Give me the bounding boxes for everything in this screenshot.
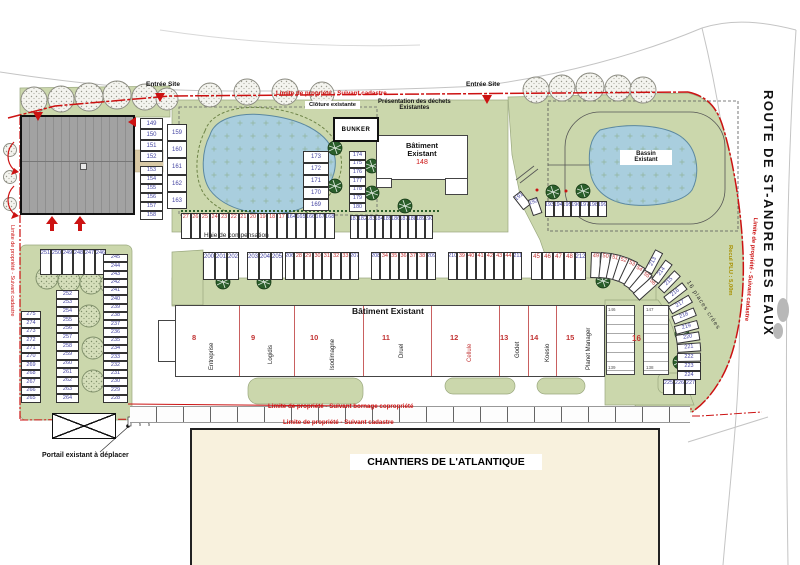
parking-stall: 156 (140, 193, 163, 202)
parking-stall: 171 (303, 175, 329, 187)
unit-number: 10 (310, 333, 318, 342)
bassin-line1: Bassin (636, 151, 656, 157)
parking-stall: 275 (21, 311, 41, 319)
parking-stall: 258 (56, 342, 79, 351)
unit-name: Entreprise (209, 343, 215, 370)
b148-number: 148 (416, 159, 428, 166)
boundary-label: Limite de propriété - Suivant bornage co… (268, 404, 413, 411)
parking-stall: 172 (303, 163, 329, 175)
parking-group: 251250249248247246 (40, 249, 106, 275)
parking-stall: 202 (227, 252, 239, 280)
hedge-label: Haie de compensation (204, 233, 269, 240)
bush-icon (82, 337, 104, 359)
parking-stall: 180 (349, 203, 366, 212)
parking-stall: 39 (457, 252, 466, 280)
parking-stall: 262 (56, 377, 79, 386)
parking-stall: 209 (427, 252, 436, 280)
unit-divider (363, 306, 364, 376)
parking-stall: 150 (140, 129, 163, 140)
parking-group: 153154155156157158 (140, 166, 163, 220)
bassin-label: Bassin Existant (620, 150, 672, 165)
unit-name: Isodimagne (330, 339, 336, 370)
parking-stall: 35 (390, 252, 399, 280)
main-building-label: Bâtiment Existant (352, 307, 424, 316)
parking-stall: 37 (408, 252, 417, 280)
parking-group: 206282930313233207 (285, 252, 359, 280)
parking-stall: 270 (21, 353, 41, 361)
parking-stall: 182 (358, 215, 366, 239)
parking-stall: 17 (277, 213, 287, 239)
parking-stall: 161 (167, 158, 187, 175)
tree-icon (576, 73, 604, 101)
tree-icon (576, 184, 590, 198)
unit-number: 16 (632, 334, 641, 343)
parking-stall: 221 (677, 342, 702, 353)
building-line (22, 161, 133, 162)
chantiers-label: CHANTIERS DE L'ATLANTIQUE (350, 454, 542, 470)
parking-stall: 43 (494, 252, 503, 280)
parking-stall: 256 (56, 325, 79, 334)
parking-stall: 245 (103, 254, 128, 262)
parking-stall: 185 (383, 215, 391, 239)
parking-stall: 211 (513, 252, 522, 280)
parking-group: 203204205 (247, 252, 283, 280)
tree-icon (103, 81, 131, 109)
parking-stall: 238 (103, 312, 128, 320)
parking-stall: 179 (349, 194, 366, 203)
parking-stall: 201 (215, 252, 227, 280)
parking-stall: 269 (21, 361, 41, 369)
boundary-label: Limite de propriété - Suivant cadastre (8, 225, 14, 316)
marker-icon (33, 112, 43, 121)
waste-label-line2: Existantes (399, 105, 429, 111)
entrance-marker-icon (155, 93, 165, 102)
parking-stall: 232 (103, 361, 128, 369)
gate-label: Portail existant à déplacer (42, 452, 129, 459)
building-core (80, 163, 87, 170)
parking-stall: 271 (21, 345, 41, 353)
parking-stall: 243 (103, 271, 128, 279)
parking-stall: 225 (663, 379, 674, 395)
parking-stall: 29 (304, 252, 313, 280)
tree-icon (4, 144, 17, 157)
parking-stall: 178 (349, 186, 366, 195)
parking-stall: 257 (56, 333, 79, 342)
parking-stall: 160 (167, 141, 187, 158)
parking-stall: 159 (167, 124, 187, 141)
parking-group: 210394041424344211 (448, 252, 522, 280)
parking-stall: 32 (331, 252, 340, 280)
tree-icon (328, 179, 342, 193)
bunker: BUNKER (333, 117, 379, 142)
parking-stall: 251 (40, 249, 51, 275)
parking-stall: 230 (103, 378, 128, 386)
parking-stall: 183 (367, 215, 375, 239)
parking-stall: 162 (167, 175, 187, 192)
parking-stall: 233 (103, 353, 128, 361)
parking-group: 173172171170169 (303, 151, 329, 211)
parking-stall: 40 (467, 252, 476, 280)
parking-stall: 45 (531, 252, 542, 280)
parking-stall: 163 (167, 192, 187, 209)
parking-stall: 184 (375, 215, 383, 239)
parking-stall: 30 (313, 252, 322, 280)
stall-corner-number: 138 (646, 365, 654, 370)
parking-group: 225226227 (663, 379, 696, 395)
unit-name: Planet Manager (586, 328, 592, 370)
parking-stall: 168 (325, 213, 335, 239)
parking-stall: 177 (349, 177, 366, 186)
parking-stall: 240 (103, 295, 128, 303)
parking-stall: 173 (303, 151, 329, 163)
parking-stall: 176 (349, 168, 366, 177)
parking-stall: 26 (191, 213, 201, 239)
stall-corner-number: 147 (646, 307, 654, 312)
setback-label: Recul PLU : 5,00m (727, 245, 733, 296)
parking-stall: 222 (677, 353, 701, 362)
unit-divider (556, 306, 557, 376)
parking-stall: 28 (294, 252, 303, 280)
b148-line2: Existant (407, 149, 436, 158)
parking-group: 200201202 (203, 252, 239, 280)
parking-group: 193194195196197198199 (545, 201, 607, 217)
parking-stall: 250 (51, 249, 62, 275)
unit-name: Druel (399, 344, 405, 358)
parking-stall: 229 (103, 386, 128, 394)
unit-number: 11 (382, 333, 390, 342)
stall-corner-number: 146 (608, 307, 616, 312)
batiment-148-label: Bâtiment Existant 148 (388, 142, 456, 166)
parking-stall: 273 (21, 328, 41, 336)
unit-name: Koesio (545, 344, 551, 362)
bush-icon (78, 305, 100, 327)
tree-icon (630, 77, 656, 103)
parking-stall: 151 (140, 140, 163, 151)
parking-stall: 165 (296, 213, 306, 239)
parking-stall: 27 (181, 213, 191, 239)
parking-stall: 244 (103, 262, 128, 270)
parking-stall: 247 (84, 249, 95, 275)
parking-stall: 197 (580, 201, 589, 217)
parking-stall: 198 (589, 201, 598, 217)
parking-stall: 235 (103, 337, 128, 345)
parking-stall: 41 (476, 252, 485, 280)
parking-stall: 260 (56, 360, 79, 369)
parking-stall: 208 (371, 252, 380, 280)
parking-stall: 47 (553, 252, 564, 280)
parking-stall: 170 (303, 187, 329, 199)
parking-stall: 186 (391, 215, 399, 239)
parking-stall: 154 (140, 175, 163, 184)
parking-stall: 268 (21, 370, 41, 378)
parking-stall: 164 (287, 213, 297, 239)
waste-label: Présentation des déchets Existantes (378, 99, 451, 112)
parking-stall: 167 (315, 213, 325, 239)
tree-icon (549, 75, 575, 101)
parking-group: 275274273272271270269268267266265 (21, 311, 41, 403)
marker-dot (565, 190, 568, 193)
parking-stall: 204 (259, 252, 271, 280)
parking-stall: 231 (103, 370, 128, 378)
parking-stall: 227 (685, 379, 696, 395)
unit-number: 15 (566, 333, 574, 342)
tree-icon (365, 186, 379, 200)
parking-stall: 196 (571, 201, 580, 217)
parking-stall: 200 (203, 252, 215, 280)
parking-stall: 228 (103, 395, 128, 403)
parking-stall: 248 (73, 249, 84, 275)
parking-stall: 193 (545, 201, 554, 217)
batiment-existant-148-wing (445, 178, 468, 195)
bush-icon (80, 272, 102, 294)
unit-divider (239, 306, 240, 376)
tree-icon (48, 86, 74, 112)
parking-stall: 265 (21, 395, 41, 403)
parking-stall: 175 (349, 160, 366, 169)
parking-stall: 203 (247, 252, 259, 280)
parking-stall: 234 (103, 345, 128, 353)
parking-stall: 205 (271, 252, 283, 280)
parking-stall: 259 (56, 351, 79, 360)
parking-stall: 46 (542, 252, 553, 280)
parking-stall: 210 (448, 252, 457, 280)
chantiers-building (190, 428, 660, 565)
parking-stall: 190 (425, 215, 433, 239)
parking-stall: 48 (564, 252, 575, 280)
unit-number: 12 (450, 333, 458, 342)
tree-icon (234, 79, 260, 105)
crossed-structure (52, 413, 116, 439)
parking-stall: 157 (140, 202, 163, 211)
road-name: ROUTE DE ST-ANDRE DES EAUX (761, 90, 775, 336)
entrance-label: Entrée Site (466, 82, 500, 89)
unit-name: Logidis (268, 345, 274, 364)
unit-name: Godet (515, 342, 521, 358)
unit-number: 13 (500, 333, 508, 342)
unit-divider (431, 306, 432, 376)
parking-stall: 267 (21, 378, 41, 386)
pond-bassin (589, 126, 696, 206)
parking-stall: 207 (350, 252, 359, 280)
unit-number: 14 (530, 333, 538, 342)
parking-stall: 189 (416, 215, 424, 239)
parking-stall: 195 (563, 201, 572, 217)
parking-stall: 152 (140, 151, 163, 162)
marker-dot (536, 189, 539, 192)
batiment-existant-148-wing (376, 178, 392, 188)
parking-stall: 249 (62, 249, 73, 275)
parking-stall: 274 (21, 319, 41, 327)
parking-stall: 158 (140, 211, 163, 220)
existing-warehouse (20, 115, 135, 215)
site-plan: BUNKER 8 Entreprise 9 Logidis 10 Isodima… (0, 0, 800, 565)
parking-stall: 34 (380, 252, 389, 280)
parking-stall: 31 (322, 252, 331, 280)
fence-label: Clôture existante (305, 101, 360, 109)
boundary-label: Limite de propriété - Suivant cadastre (283, 420, 394, 427)
parking-stall: 42 (485, 252, 494, 280)
parking-stall: 212 (575, 252, 586, 280)
parking-stall: 206 (285, 252, 294, 280)
tree-icon (546, 185, 560, 199)
parking-stall: 255 (56, 316, 79, 325)
parking-stall: 181 (350, 215, 358, 239)
tree-icon (328, 141, 342, 155)
parking-stall: 174 (349, 151, 366, 160)
tree-icon (398, 199, 412, 213)
unit-name: Cellule (467, 344, 473, 362)
parking-stall: 236 (103, 328, 128, 336)
parking-stall: 153 (140, 166, 163, 175)
boundary-label: Limite de propriété - Suivant cadastre (276, 91, 387, 98)
parking-stall: 166 (306, 213, 316, 239)
parking-stall: 44 (504, 252, 513, 280)
waste-label-line1: Présentation des déchets (378, 99, 451, 105)
parking-stall: 38 (417, 252, 426, 280)
parking-stall: 223 (677, 362, 701, 371)
unit-divider (528, 306, 529, 376)
parking-group: 2083435363738209 (371, 252, 436, 280)
parking-stall: 155 (140, 184, 163, 193)
parking-stall: 188 (408, 215, 416, 239)
stall-corner-number: 139 (608, 365, 616, 370)
parking-stall: 252 (56, 290, 79, 299)
parking-group: 45464748212 (531, 252, 586, 280)
parking-stall: 33 (341, 252, 350, 280)
parking-stall: 266 (21, 387, 41, 395)
parking-group: 181182183184185186187188189190 (350, 215, 433, 239)
bush-icon (82, 370, 104, 392)
unit-number: 9 (251, 333, 255, 342)
tree-icon (605, 75, 631, 101)
main-building-ext (158, 320, 176, 362)
parking-stall: 187 (400, 215, 408, 239)
entrance-label: Entrée Site (146, 82, 180, 89)
road-marking (777, 298, 789, 322)
parking-stall: 36 (399, 252, 408, 280)
arrow-left-icon (128, 117, 136, 127)
parking-stall: 261 (56, 368, 79, 377)
entrance-marker-icon (482, 95, 492, 104)
parking-group: 174175176177178179180 (349, 151, 366, 212)
parking-stall: 254 (56, 307, 79, 316)
parking-group: 252253254255256257258259260261262263264 (56, 290, 79, 403)
unit-divider (294, 306, 295, 376)
parking-stall: 149 (140, 118, 163, 129)
parking-group: 2452442432422412402392382372362352342332… (103, 254, 128, 403)
tree-icon (523, 77, 549, 103)
parking-group: 159160161162163 (167, 124, 187, 209)
parking-stall: 264 (56, 394, 79, 403)
parking-group: 149150151152 (140, 118, 163, 162)
bassin-line2: Existant (634, 157, 657, 163)
parking-stall: 239 (103, 304, 128, 312)
parking-stall: 237 (103, 320, 128, 328)
tree-icon (75, 83, 103, 111)
parking-stall: 241 (103, 287, 128, 295)
parking-stall: 253 (56, 299, 79, 308)
parking-stall: 194 (554, 201, 563, 217)
arrow-up-icon (74, 216, 86, 231)
arrow-up-icon (46, 216, 58, 231)
parking-stall: 199 (598, 201, 607, 217)
parking-stall: 242 (103, 279, 128, 287)
parking-stall: 226 (674, 379, 685, 395)
unit-number: 8 (192, 333, 196, 342)
parking-stall: 169 (303, 199, 329, 211)
parking-stall: 263 (56, 386, 79, 395)
tree-icon (21, 87, 47, 113)
parking-stall: 272 (21, 336, 41, 344)
